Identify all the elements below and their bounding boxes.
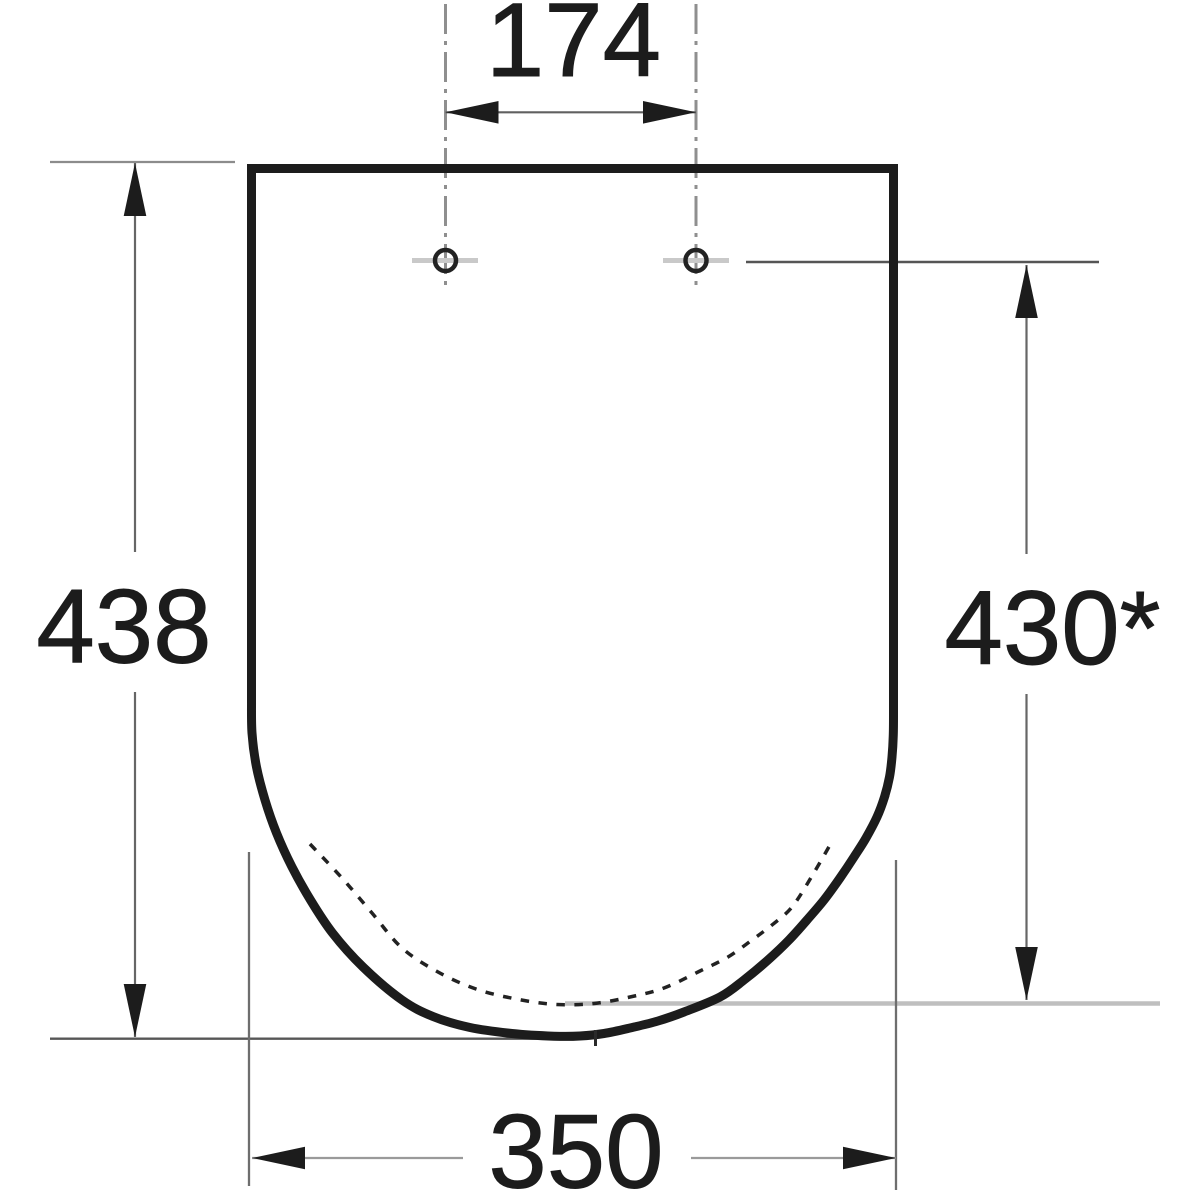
svg-text:430*: 430* bbox=[944, 570, 1160, 687]
svg-text:350: 350 bbox=[488, 1094, 663, 1200]
svg-text:174: 174 bbox=[486, 0, 661, 99]
svg-text:438: 438 bbox=[36, 569, 211, 686]
